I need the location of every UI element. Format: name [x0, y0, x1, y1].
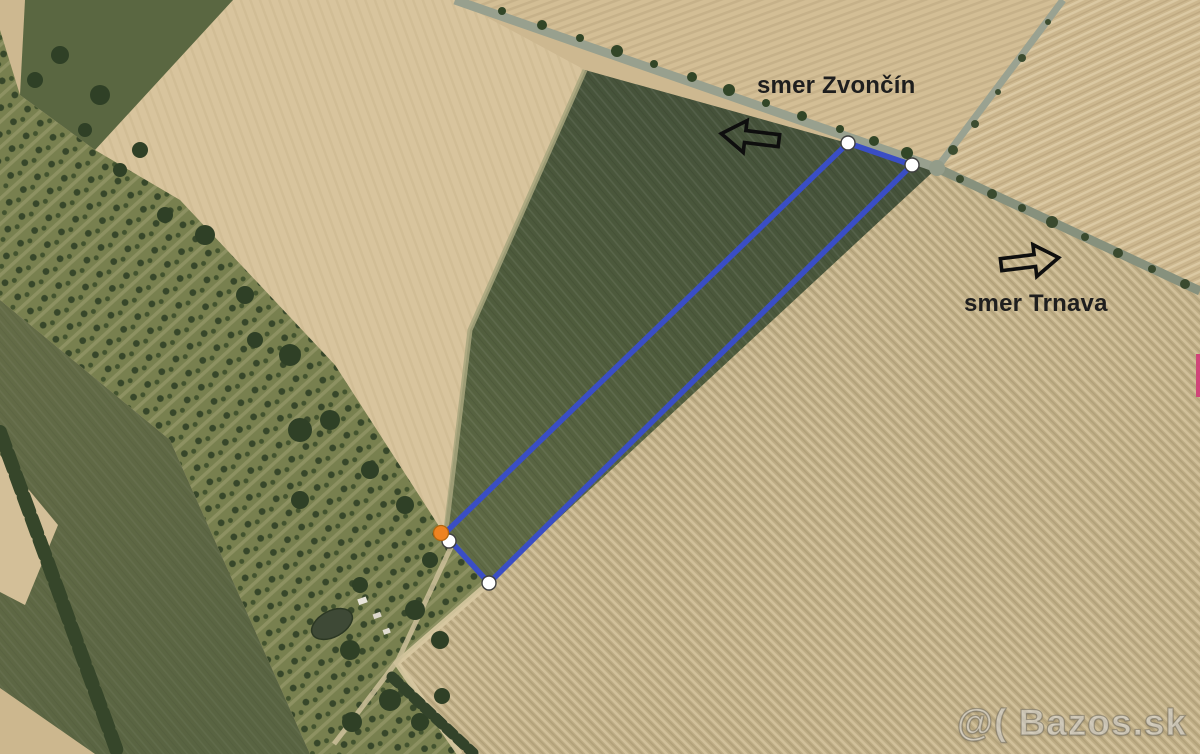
- direction-label-zvoncin: smer Zvončín: [757, 72, 915, 100]
- vertex-dot: [905, 158, 919, 172]
- direction-arrow-right-icon: [997, 238, 1065, 286]
- direction-label-trnava: smer Trnava: [964, 290, 1108, 318]
- vertex-dot: [482, 576, 496, 590]
- bazos-watermark: @( Bazos.sk: [957, 702, 1187, 744]
- direction-arrow-left-icon: [714, 112, 785, 164]
- vertex-dot: [841, 136, 855, 150]
- satellite-map: [0, 0, 1200, 754]
- terrain-fields: [0, 0, 1200, 754]
- edge-marker: [1196, 354, 1200, 397]
- orange-vertex-dot: [434, 526, 449, 541]
- listing-photo: smer Zvončín smer Trnava @( Bazos.sk: [0, 0, 1200, 754]
